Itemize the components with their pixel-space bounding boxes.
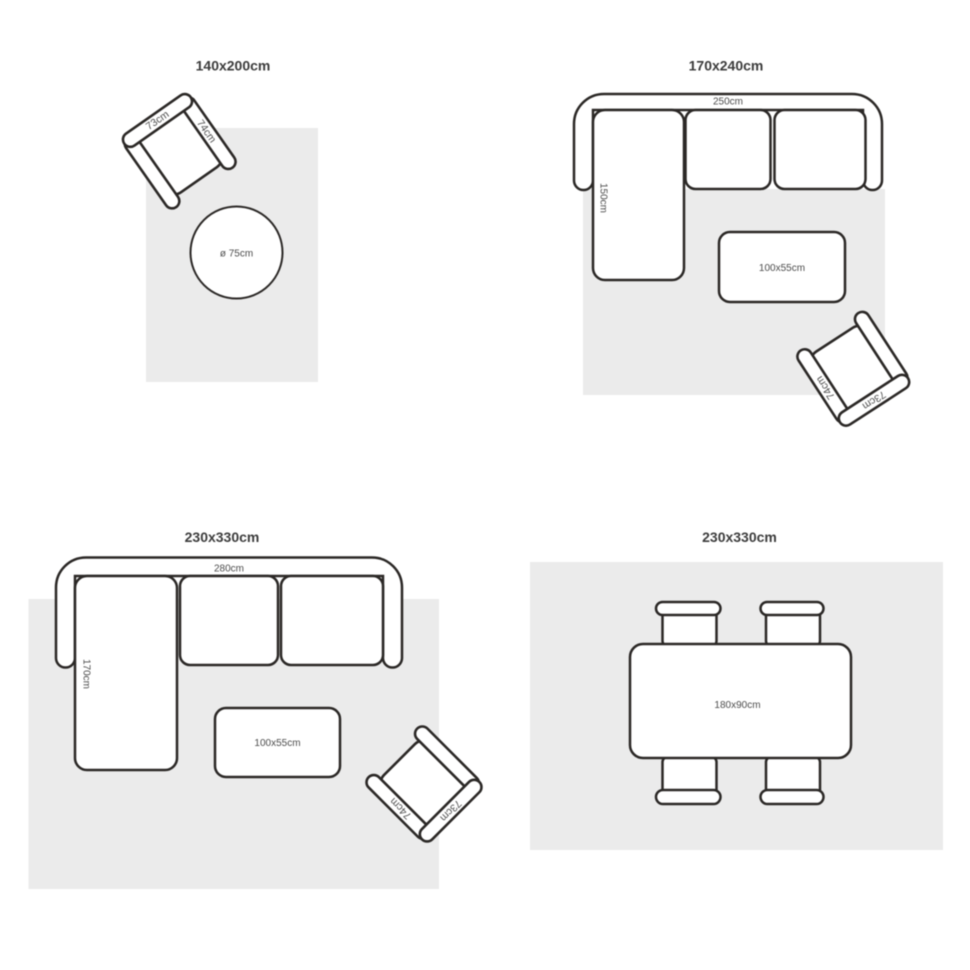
svg-text:150cm: 150cm [598,183,609,213]
svg-text:170cm: 170cm [81,659,92,689]
svg-text:230x330cm: 230x330cm [702,529,777,545]
svg-text:280cm: 280cm [214,564,244,575]
svg-text:250cm: 250cm [713,97,743,108]
svg-text:230x330cm: 230x330cm [185,529,260,545]
svg-text:ø 75cm: ø 75cm [220,249,253,260]
svg-text:170x240cm: 170x240cm [689,58,764,74]
svg-text:100x55cm: 100x55cm [254,738,300,749]
svg-text:140x200cm: 140x200cm [196,58,271,74]
svg-text:180x90cm: 180x90cm [714,700,760,711]
svg-text:100x55cm: 100x55cm [759,263,805,274]
